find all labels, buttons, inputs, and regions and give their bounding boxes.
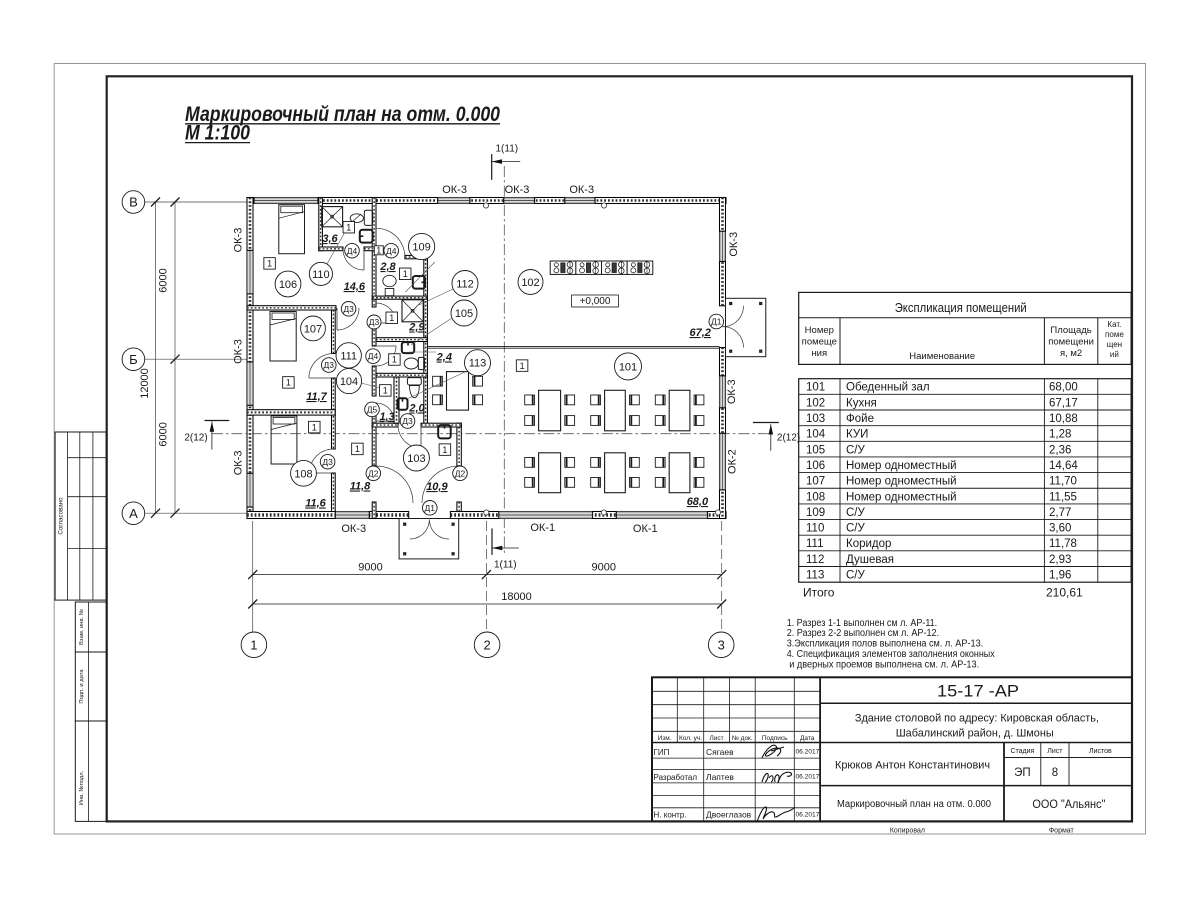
svg-text:Листов: Листов xyxy=(1089,748,1112,755)
svg-text:А: А xyxy=(129,506,138,521)
svg-text:8: 8 xyxy=(1052,767,1058,779)
svg-text:и дверных проемов выполнена с: и дверных проемов выполнена см. л. АР-13… xyxy=(789,659,979,670)
svg-text:Кухня: Кухня xyxy=(846,397,877,409)
svg-text:104: 104 xyxy=(806,429,826,441)
svg-text:3: 3 xyxy=(718,637,725,652)
svg-text:18000: 18000 xyxy=(501,591,532,603)
svg-text:2,93: 2,93 xyxy=(1049,554,1071,566)
svg-text:1: 1 xyxy=(376,246,381,256)
svg-text:6000: 6000 xyxy=(158,422,170,446)
svg-text:11,6: 11,6 xyxy=(305,498,326,510)
svg-text:103: 103 xyxy=(407,453,425,465)
svg-text:щен: щен xyxy=(1107,340,1122,349)
svg-text:+0,000: +0,000 xyxy=(580,296,611,307)
svg-text:2,77: 2,77 xyxy=(1049,507,1071,519)
svg-text:Стадия: Стадия xyxy=(1010,748,1034,755)
svg-text:06.2017: 06.2017 xyxy=(796,774,820,781)
svg-text:102: 102 xyxy=(806,397,825,409)
svg-text:112: 112 xyxy=(456,278,474,290)
svg-text:Разработал: Разработал xyxy=(654,773,698,782)
svg-text:Согласовано: Согласовано xyxy=(57,497,64,535)
svg-text:2,4: 2,4 xyxy=(436,352,452,364)
svg-text:ООО "Альянс": ООО "Альянс" xyxy=(1032,799,1105,811)
svg-text:1: 1 xyxy=(267,259,272,269)
svg-text:Номер одноместный: Номер одноместный xyxy=(846,476,957,488)
svg-text:Инв. №подл.: Инв. №подл. xyxy=(79,770,85,805)
svg-text:Душевая: Душевая xyxy=(846,554,894,566)
svg-text:Экспликация помещений: Экспликация помещений xyxy=(895,301,1027,315)
svg-text:ОК-2: ОК-2 xyxy=(727,449,739,474)
svg-text:Изм.: Изм. xyxy=(658,735,672,742)
svg-text:Лист: Лист xyxy=(1047,748,1063,755)
svg-text:ния: ния xyxy=(811,348,827,359)
svg-text:Площадь: Площадь xyxy=(1050,325,1091,336)
svg-text:103: 103 xyxy=(806,413,825,425)
svg-text:С/У: С/У xyxy=(846,444,866,456)
svg-text:Д3: Д3 xyxy=(324,360,335,370)
svg-text:101: 101 xyxy=(806,382,825,394)
svg-text:Маркировочный план на отм. 0.: Маркировочный план на отм. 0.000 xyxy=(837,799,991,810)
svg-text:12000: 12000 xyxy=(139,368,151,399)
svg-text:111: 111 xyxy=(806,538,823,550)
svg-text:1: 1 xyxy=(346,222,351,232)
svg-text:105: 105 xyxy=(455,308,473,320)
svg-text:2: 2 xyxy=(483,637,490,652)
svg-text:Н. контр.: Н. контр. xyxy=(654,811,687,820)
svg-text:11,78: 11,78 xyxy=(1049,538,1077,550)
svg-text:Д3: Д3 xyxy=(369,317,380,327)
svg-text:Здание столовой по адресу: Кир: Здание столовой по адресу: Кировская обл… xyxy=(855,713,1099,725)
svg-text:я, м2: я, м2 xyxy=(1060,348,1082,359)
svg-text:15-17 -АР: 15-17 -АР xyxy=(937,682,1019,701)
svg-text:1(11): 1(11) xyxy=(495,144,518,155)
svg-text:111: 111 xyxy=(340,350,357,362)
svg-text:109: 109 xyxy=(806,507,825,519)
svg-text:ОК-3: ОК-3 xyxy=(728,232,740,257)
svg-text:КУИ: КУИ xyxy=(846,429,868,441)
svg-text:2,0: 2,0 xyxy=(408,403,425,415)
svg-text:Формат: Формат xyxy=(1049,828,1075,835)
svg-text:9000: 9000 xyxy=(592,562,616,574)
svg-text:11,55: 11,55 xyxy=(1049,491,1077,503)
svg-text:68,0: 68,0 xyxy=(687,496,709,508)
svg-text:№ док.: № док. xyxy=(732,735,753,742)
svg-text:1: 1 xyxy=(520,361,525,371)
svg-text:102: 102 xyxy=(521,277,539,289)
svg-text:С/У: С/У xyxy=(846,570,866,582)
svg-text:108: 108 xyxy=(294,468,312,480)
svg-text:Номер одноместный: Номер одноместный xyxy=(846,460,957,472)
svg-text:ЭП: ЭП xyxy=(1014,767,1031,779)
svg-text:108: 108 xyxy=(806,491,825,503)
svg-text:2,8: 2,8 xyxy=(379,261,396,273)
svg-text:1: 1 xyxy=(383,386,388,396)
svg-text:101: 101 xyxy=(619,361,637,373)
svg-text:ОК-3: ОК-3 xyxy=(233,451,245,476)
svg-text:106: 106 xyxy=(806,460,825,472)
svg-text:1,3: 1,3 xyxy=(379,411,394,423)
svg-text:Подпись: Подпись xyxy=(762,735,788,742)
svg-text:Копировал: Копировал xyxy=(890,828,925,835)
svg-text:Лаптев: Лаптев xyxy=(706,772,734,782)
svg-text:ОК-3: ОК-3 xyxy=(233,228,245,253)
svg-text:Крюков Антон Константинович: Крюков Антон Константинович xyxy=(835,760,990,772)
svg-text:Д4: Д4 xyxy=(386,246,397,256)
svg-text:14,6: 14,6 xyxy=(344,281,366,293)
svg-text:Шабалинский район, д. Шмоны: Шабалинский район, д. Шмоны xyxy=(896,728,1054,740)
svg-text:112: 112 xyxy=(806,554,824,566)
svg-text:Дата: Дата xyxy=(800,735,815,742)
svg-text:ОК-3: ОК-3 xyxy=(569,184,594,196)
svg-text:107: 107 xyxy=(806,476,825,488)
svg-text:Лист: Лист xyxy=(709,735,723,742)
svg-text:ОК-1: ОК-1 xyxy=(633,523,658,535)
svg-text:Кат.: Кат. xyxy=(1107,320,1121,329)
svg-text:Д3: Д3 xyxy=(343,304,354,314)
svg-text:Номер одноместный: Номер одноместный xyxy=(846,491,957,503)
svg-text:3.Экспликация полов выполнена: 3.Экспликация полов выполнена см. л. АР-… xyxy=(787,639,984,650)
svg-text:107: 107 xyxy=(304,323,322,335)
svg-text:Д2: Д2 xyxy=(455,468,466,478)
svg-text:ий: ий xyxy=(1110,350,1119,359)
svg-text:1: 1 xyxy=(286,378,291,388)
svg-text:11,8: 11,8 xyxy=(350,481,371,493)
svg-text:помещени: помещени xyxy=(1048,337,1094,348)
svg-text:113: 113 xyxy=(806,570,824,582)
svg-text:В: В xyxy=(129,195,138,210)
svg-text:1: 1 xyxy=(312,422,317,432)
svg-text:3,6: 3,6 xyxy=(322,233,338,245)
svg-text:1: 1 xyxy=(403,269,408,279)
svg-text:1,96: 1,96 xyxy=(1049,570,1071,582)
svg-text:11,70: 11,70 xyxy=(1049,476,1077,488)
svg-text:2. Разрез 2-2 выполнен см л. А: 2. Разрез 2-2 выполнен см л. АР-12. xyxy=(787,628,939,639)
svg-text:1: 1 xyxy=(442,445,447,455)
svg-text:67,2: 67,2 xyxy=(689,327,710,339)
svg-text:105: 105 xyxy=(806,444,825,456)
svg-text:Наименование: Наименование xyxy=(909,351,975,362)
svg-text:С/У: С/У xyxy=(846,507,866,519)
svg-text:Номер: Номер xyxy=(805,325,834,336)
svg-text:1: 1 xyxy=(392,355,397,365)
svg-text:1: 1 xyxy=(389,313,394,323)
svg-text:Д1: Д1 xyxy=(425,503,436,513)
svg-text:06.2017: 06.2017 xyxy=(796,749,820,756)
svg-text:Д3: Д3 xyxy=(322,457,333,467)
svg-text:67,17: 67,17 xyxy=(1049,397,1078,409)
svg-text:68,00: 68,00 xyxy=(1049,382,1078,394)
svg-text:Д3: Д3 xyxy=(402,416,413,426)
svg-text:поме: поме xyxy=(1105,330,1124,339)
svg-text:2,36: 2,36 xyxy=(1049,444,1071,456)
svg-text:104: 104 xyxy=(340,376,358,388)
svg-text:106: 106 xyxy=(279,279,297,291)
svg-text:10,88: 10,88 xyxy=(1049,413,1078,425)
svg-text:Фойе: Фойе xyxy=(846,413,874,425)
svg-text:Взам. инв. №: Взам. инв. № xyxy=(79,609,85,645)
svg-text:9000: 9000 xyxy=(358,562,382,574)
svg-text:109: 109 xyxy=(412,241,430,253)
svg-text:Двоеглазов: Двоеглазов xyxy=(706,810,752,820)
svg-text:14,64: 14,64 xyxy=(1049,460,1078,472)
svg-text:1(11): 1(11) xyxy=(494,560,517,571)
svg-text:Подп. и дата: Подп. и дата xyxy=(79,669,85,704)
svg-text:1,28: 1,28 xyxy=(1049,429,1071,441)
svg-text:4. Спецификация элементов запо: 4. Спецификация элементов заполнения око… xyxy=(787,649,995,660)
svg-text:113: 113 xyxy=(469,358,487,370)
svg-text:ОК-3: ОК-3 xyxy=(442,184,467,196)
svg-text:Д4: Д4 xyxy=(347,246,358,256)
svg-text:Д2: Д2 xyxy=(368,468,379,478)
svg-text:06.2017: 06.2017 xyxy=(796,812,820,819)
svg-text:11,7: 11,7 xyxy=(306,391,327,403)
svg-text:2(12): 2(12) xyxy=(777,433,800,444)
svg-text:Кол. уч.: Кол. уч. xyxy=(679,735,702,742)
svg-text:2(12): 2(12) xyxy=(184,433,207,444)
svg-text:10,9: 10,9 xyxy=(426,481,448,493)
svg-text:Итого: Итого xyxy=(803,586,835,600)
svg-text:3,60: 3,60 xyxy=(1049,523,1071,535)
svg-text:2,9: 2,9 xyxy=(408,322,425,334)
svg-text:1: 1 xyxy=(250,637,257,652)
svg-text:ГИП: ГИП xyxy=(654,748,670,757)
svg-text:ОК-3: ОК-3 xyxy=(341,523,366,535)
svg-text:Д5: Д5 xyxy=(367,404,378,414)
svg-text:210,61: 210,61 xyxy=(1046,586,1083,600)
svg-text:110: 110 xyxy=(312,269,330,281)
svg-text:1. Разрез 1-1 выполнен см л. А: 1. Разрез 1-1 выполнен см л. АР-11. xyxy=(787,618,938,629)
svg-text:ОК-1: ОК-1 xyxy=(530,522,555,534)
svg-text:ОК-3: ОК-3 xyxy=(505,184,530,196)
svg-text:помеще: помеще xyxy=(802,337,837,348)
svg-text:6000: 6000 xyxy=(158,268,170,292)
svg-text:ОК-3: ОК-3 xyxy=(726,379,738,404)
svg-text:ОК-3: ОК-3 xyxy=(233,339,245,364)
svg-text:С/У: С/У xyxy=(846,523,866,535)
svg-text:Д4: Д4 xyxy=(368,351,379,361)
svg-text:Обеденный зал: Обеденный зал xyxy=(846,382,930,394)
svg-text:Сягаев: Сягаев xyxy=(706,747,734,757)
svg-text:Б: Б xyxy=(129,352,138,367)
svg-text:Коридор: Коридор xyxy=(846,538,891,550)
svg-text:110: 110 xyxy=(806,523,824,535)
svg-text:Д1: Д1 xyxy=(711,317,722,327)
svg-text:1: 1 xyxy=(355,444,360,454)
svg-text:М 1:100: М 1:100 xyxy=(185,122,250,145)
